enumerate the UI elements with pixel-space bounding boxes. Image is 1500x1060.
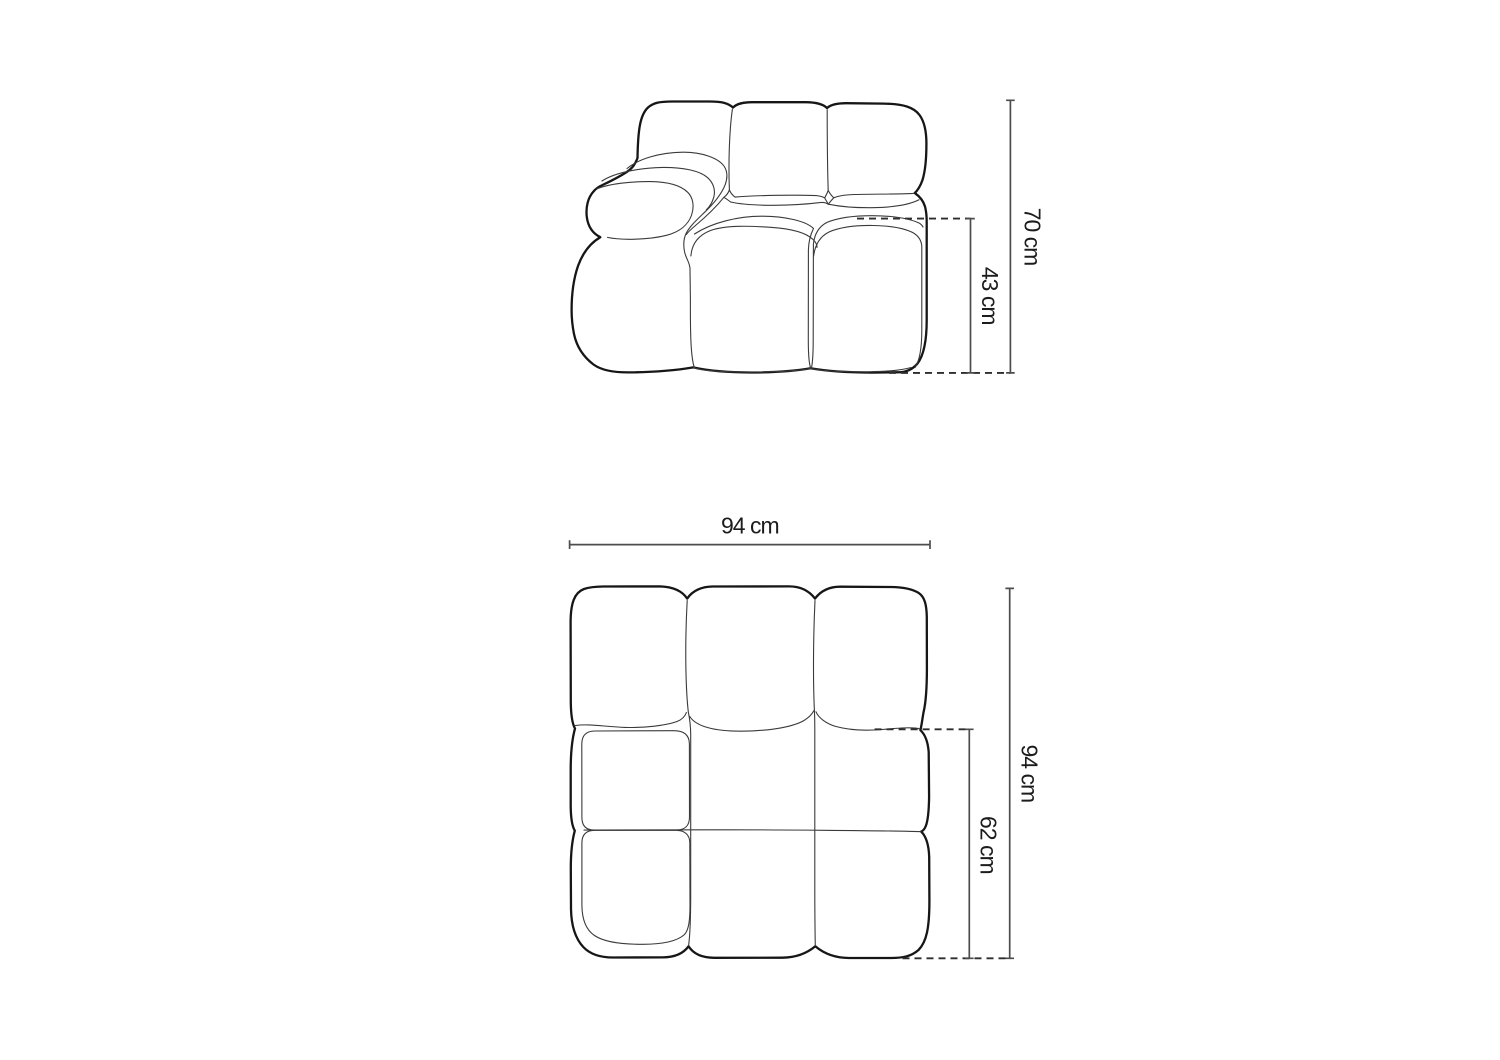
svg-text:94 cm: 94 cm	[721, 513, 779, 539]
svg-text:62 cm: 62 cm	[976, 816, 1002, 874]
svg-text:70 cm: 70 cm	[1019, 208, 1045, 266]
svg-text:43 cm: 43 cm	[977, 267, 1003, 325]
svg-text:94 cm: 94 cm	[1016, 744, 1042, 802]
